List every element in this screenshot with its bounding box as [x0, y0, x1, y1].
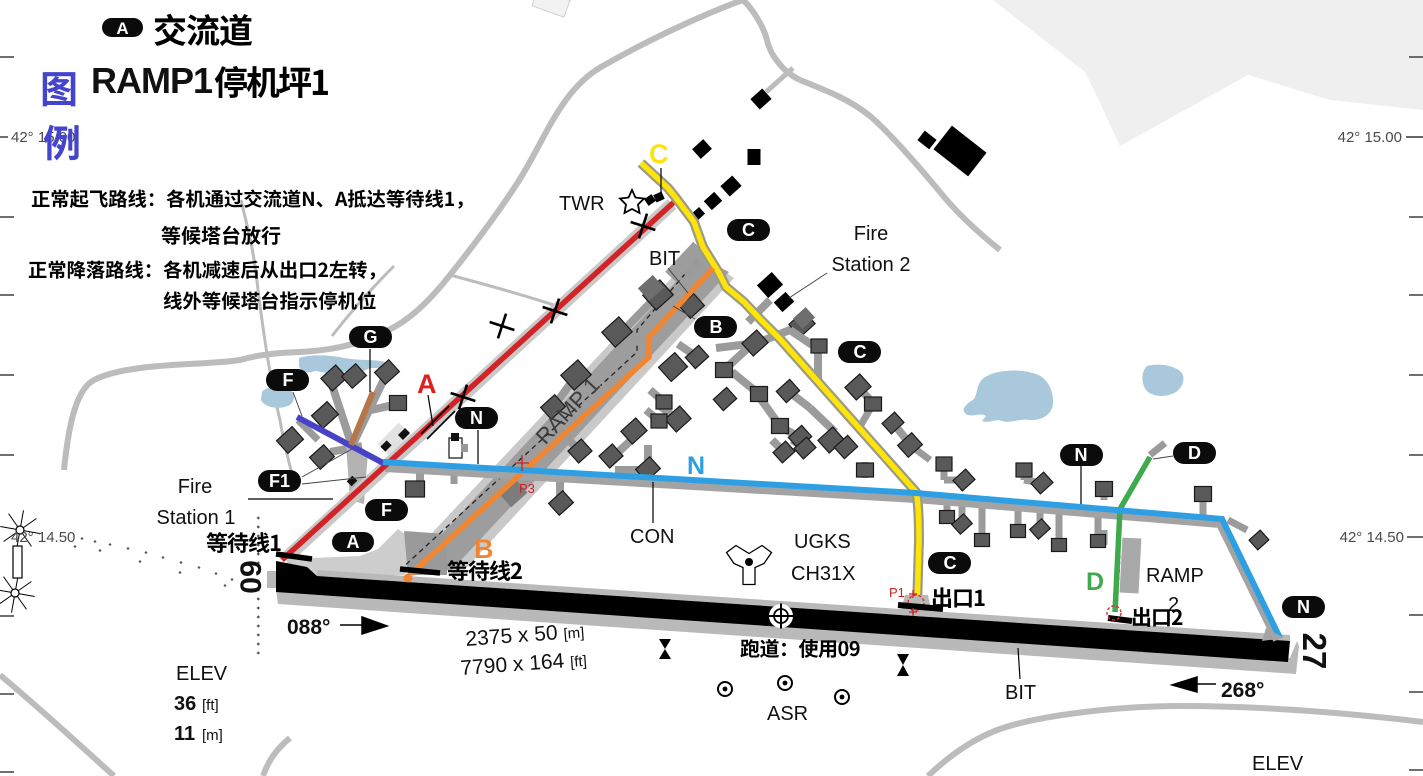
- svg-text:UGKS: UGKS: [794, 531, 851, 553]
- svg-text:BIT: BIT: [1005, 682, 1036, 704]
- svg-text:CON: CON: [630, 526, 674, 548]
- svg-text:A: A: [116, 19, 128, 38]
- svg-text:N: N: [1297, 597, 1310, 617]
- svg-text:TWR: TWR: [559, 193, 605, 215]
- svg-text:RAMP: RAMP: [1146, 565, 1204, 587]
- svg-text:ASR: ASR: [767, 703, 808, 725]
- svg-text:P3: P3: [519, 481, 535, 496]
- svg-text:BIT: BIT: [649, 248, 680, 270]
- svg-text:C: C: [854, 342, 867, 362]
- svg-text:268°: 268°: [1221, 679, 1264, 702]
- svg-text:088°: 088°: [287, 616, 330, 639]
- svg-text:ELEV: ELEV: [176, 663, 228, 685]
- svg-text:Fire: Fire: [854, 223, 888, 245]
- svg-text:D: D: [1188, 443, 1201, 463]
- svg-text:ELEV: ELEV: [1252, 753, 1304, 775]
- svg-text:Station 1: Station 1: [157, 507, 236, 529]
- svg-text:27: 27: [1296, 633, 1333, 670]
- svg-text:A: A: [417, 369, 437, 399]
- svg-text:Station 2: Station 2: [832, 254, 911, 276]
- svg-text:[m]: [m]: [202, 727, 223, 744]
- svg-text:D: D: [1086, 568, 1104, 596]
- svg-text:36: 36: [174, 693, 196, 715]
- svg-text:CH31X: CH31X: [791, 563, 855, 585]
- svg-text:09: 09: [235, 560, 268, 593]
- svg-text:G: G: [363, 327, 377, 347]
- svg-text:42° 15.00: 42° 15.00: [1338, 129, 1402, 146]
- svg-text:B: B: [474, 534, 494, 564]
- svg-text:[ft]: [ft]: [202, 697, 219, 714]
- svg-text:F: F: [283, 370, 294, 390]
- svg-text:C: C: [944, 553, 957, 573]
- svg-text:B: B: [710, 317, 723, 337]
- svg-text:N: N: [687, 452, 705, 480]
- svg-text:N: N: [1075, 445, 1088, 465]
- svg-text:42° 14.50: 42° 14.50: [1340, 529, 1404, 546]
- svg-text:42° 14.50: 42° 14.50: [11, 529, 75, 546]
- svg-text:RAMP1: RAMP1: [91, 60, 213, 101]
- svg-text:Fire: Fire: [178, 476, 212, 498]
- svg-text:N: N: [470, 408, 483, 428]
- svg-text:F: F: [381, 500, 392, 520]
- svg-text:A: A: [347, 532, 360, 552]
- svg-text:C: C: [649, 139, 669, 169]
- svg-text:11: 11: [174, 723, 195, 745]
- svg-text:F1: F1: [269, 471, 290, 491]
- svg-text:C: C: [742, 220, 755, 240]
- svg-text:P1: P1: [889, 585, 905, 600]
